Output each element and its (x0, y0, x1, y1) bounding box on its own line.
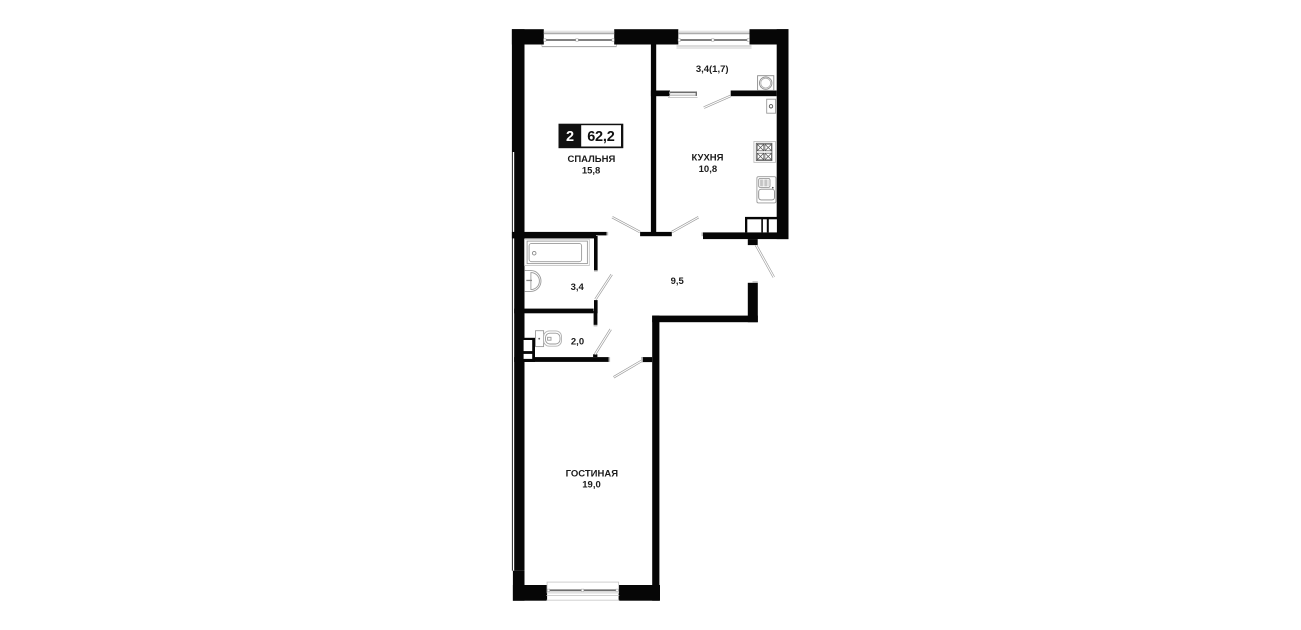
svg-text:9,5: 9,5 (671, 276, 685, 287)
svg-text:КУХНЯ: КУХНЯ (692, 152, 724, 163)
svg-text:ГОСТИНАЯ: ГОСТИНАЯ (566, 468, 619, 479)
svg-text:СПАЛЬНЯ: СПАЛЬНЯ (567, 154, 615, 165)
svg-text:62,2: 62,2 (587, 129, 615, 145)
svg-text:10,8: 10,8 (699, 164, 718, 175)
svg-text:3,4: 3,4 (571, 282, 585, 293)
svg-text:15,8: 15,8 (582, 166, 601, 177)
svg-text:19,0: 19,0 (582, 479, 601, 490)
svg-text:2: 2 (566, 129, 574, 145)
svg-text:3,4(1,7): 3,4(1,7) (696, 64, 729, 75)
svg-text:2,0: 2,0 (571, 337, 584, 348)
